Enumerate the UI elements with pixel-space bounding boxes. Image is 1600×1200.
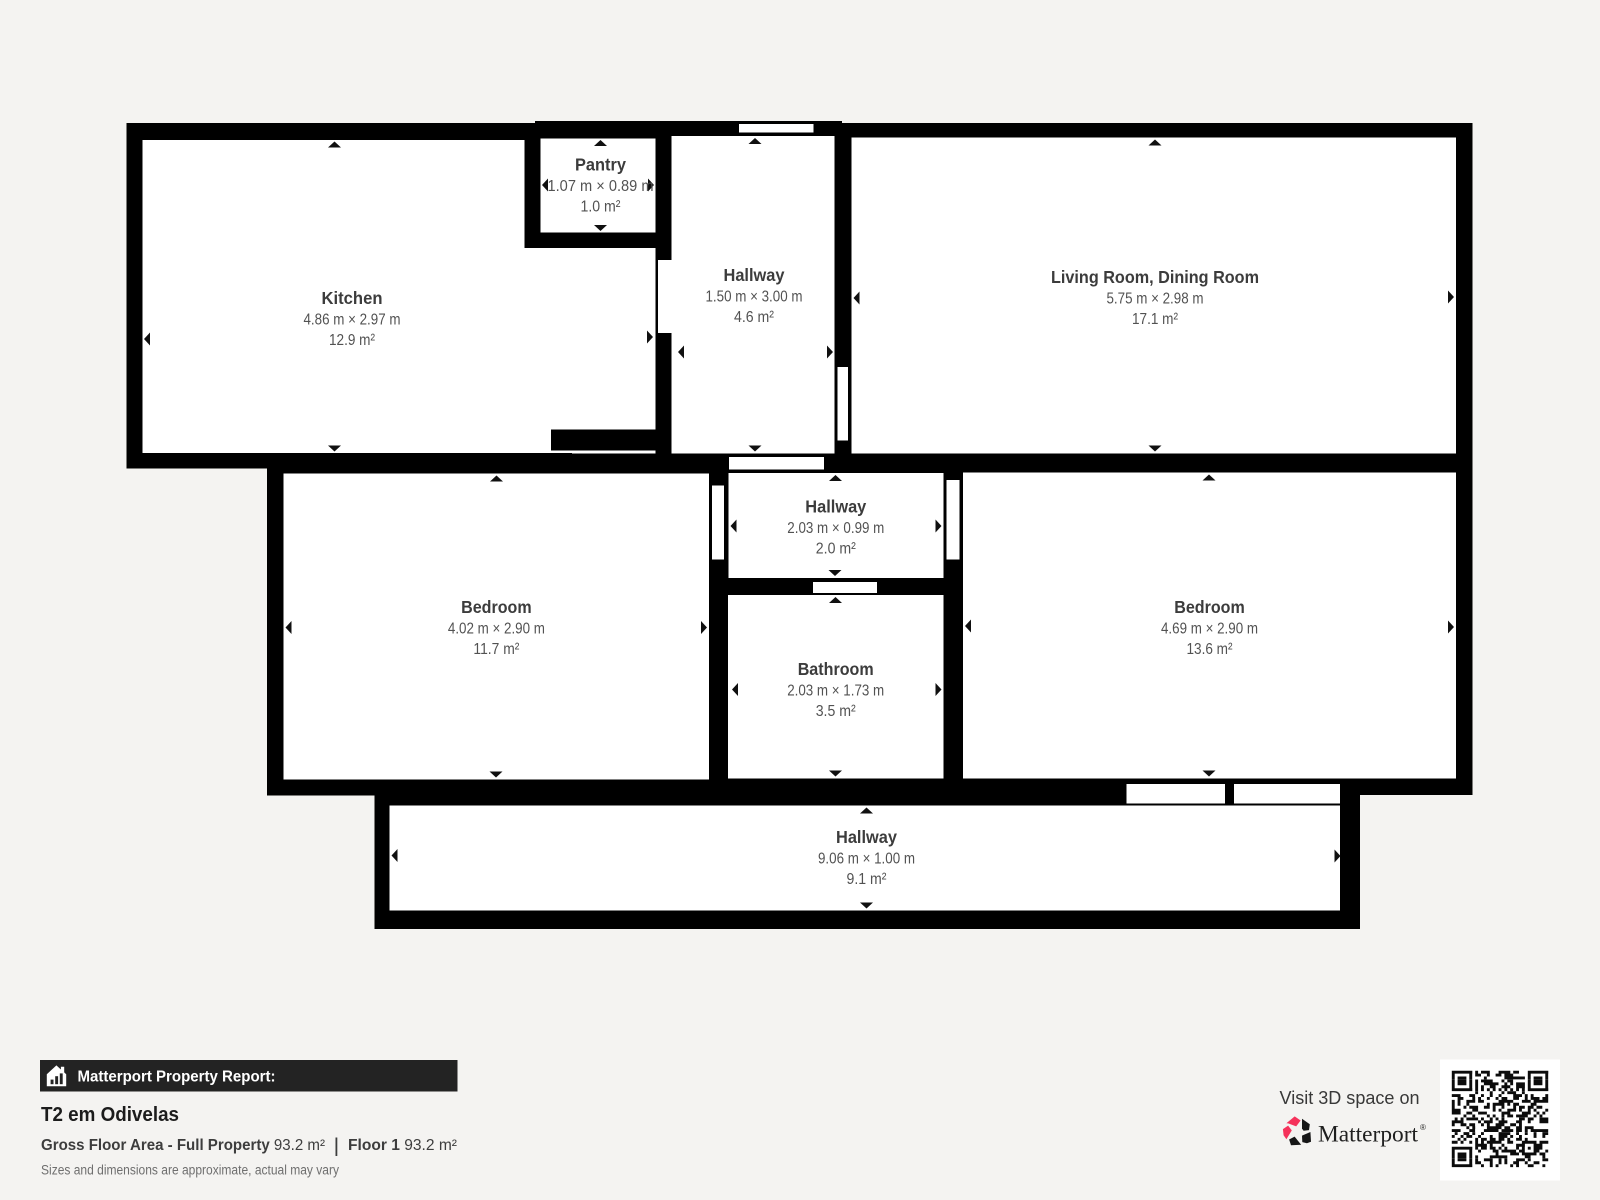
svg-text:4.69 m × 2.90 m: 4.69 m × 2.90 m — [1161, 621, 1258, 638]
svg-text:4.86 m × 2.97 m: 4.86 m × 2.97 m — [304, 312, 401, 329]
svg-text:Living Room, Dining Room: Living Room, Dining Room — [1051, 267, 1259, 287]
svg-text:Hallway: Hallway — [805, 497, 866, 517]
svg-text:Gross Floor Area - Full Proper: Gross Floor Area - Full Property 93.2 m² — [41, 1137, 325, 1154]
svg-text:Matterport Property Report:: Matterport Property Report: — [78, 1069, 276, 1086]
svg-text:Matterport: Matterport — [1318, 1122, 1419, 1147]
svg-text:2.03 m × 1.73 m: 2.03 m × 1.73 m — [787, 683, 884, 700]
svg-text:Hallway: Hallway — [724, 265, 785, 285]
svg-text:4.6 m²: 4.6 m² — [734, 309, 775, 326]
svg-text:Bedroom: Bedroom — [461, 597, 532, 617]
svg-text:2.03 m × 0.99 m: 2.03 m × 0.99 m — [787, 520, 884, 537]
svg-text:9.1 m²: 9.1 m² — [847, 871, 888, 888]
svg-text:Visit 3D space on: Visit 3D space on — [1280, 1088, 1420, 1108]
svg-text:1.0 m²: 1.0 m² — [581, 199, 622, 216]
svg-text:11.7 m²: 11.7 m² — [473, 641, 520, 658]
svg-text:Kitchen: Kitchen — [322, 288, 383, 308]
svg-text:1.50 m × 3.00 m: 1.50 m × 3.00 m — [706, 289, 803, 306]
svg-text:Bedroom: Bedroom — [1174, 597, 1245, 617]
svg-text:2.0 m²: 2.0 m² — [816, 541, 857, 558]
svg-text:4.02 m × 2.90 m: 4.02 m × 2.90 m — [448, 621, 545, 638]
svg-text:13.6 m²: 13.6 m² — [1187, 641, 1234, 658]
svg-text:Floor 1 93.2 m²: Floor 1 93.2 m² — [348, 1137, 457, 1154]
svg-text:5.75 m × 2.98 m: 5.75 m × 2.98 m — [1107, 291, 1204, 308]
svg-text:Bathroom: Bathroom — [798, 659, 874, 679]
svg-text:Hallway: Hallway — [836, 827, 897, 847]
svg-text:1.07 m × 0.89 m: 1.07 m × 0.89 m — [548, 178, 654, 195]
svg-text:Sizes and dimensions are appro: Sizes and dimensions are approximate, ac… — [41, 1163, 339, 1178]
svg-text:9.06 m × 1.00 m: 9.06 m × 1.00 m — [818, 851, 915, 868]
svg-text:3.5 m²: 3.5 m² — [816, 703, 857, 720]
svg-text:Pantry: Pantry — [575, 155, 626, 175]
svg-text:®: ® — [1420, 1123, 1426, 1132]
svg-text:12.9 m²: 12.9 m² — [329, 332, 376, 349]
svg-text:T2 em Odivelas: T2 em Odivelas — [41, 1103, 179, 1126]
svg-text:17.1 m²: 17.1 m² — [1132, 311, 1179, 328]
